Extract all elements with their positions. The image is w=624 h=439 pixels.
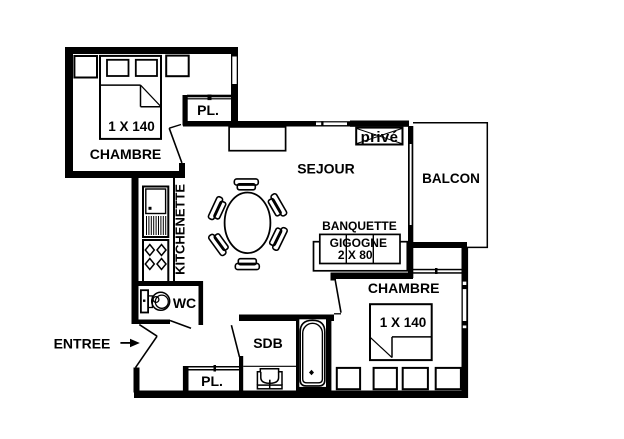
svg-text:2 X 80: 2 X 80 (338, 248, 373, 262)
svg-text:ENTREE: ENTREE (54, 336, 111, 352)
svg-text:1 X 140: 1 X 140 (108, 119, 155, 134)
svg-text:PL.: PL. (201, 373, 223, 389)
svg-text:BALCON: BALCON (422, 171, 480, 186)
svg-text:CHAMBRE: CHAMBRE (368, 280, 440, 296)
svg-text:CHAMBRE: CHAMBRE (90, 146, 162, 162)
svg-text:PL.: PL. (197, 102, 219, 118)
svg-text:SDB: SDB (253, 335, 283, 351)
svg-text:KITCHENETTE: KITCHENETTE (173, 184, 188, 275)
svg-text:BANQUETTE: BANQUETTE (322, 219, 397, 233)
svg-text:WC: WC (173, 295, 196, 311)
svg-text:SEJOUR: SEJOUR (297, 161, 355, 177)
svg-text:privé: privé (361, 129, 399, 146)
svg-text:1 X 140: 1 X 140 (380, 315, 427, 330)
